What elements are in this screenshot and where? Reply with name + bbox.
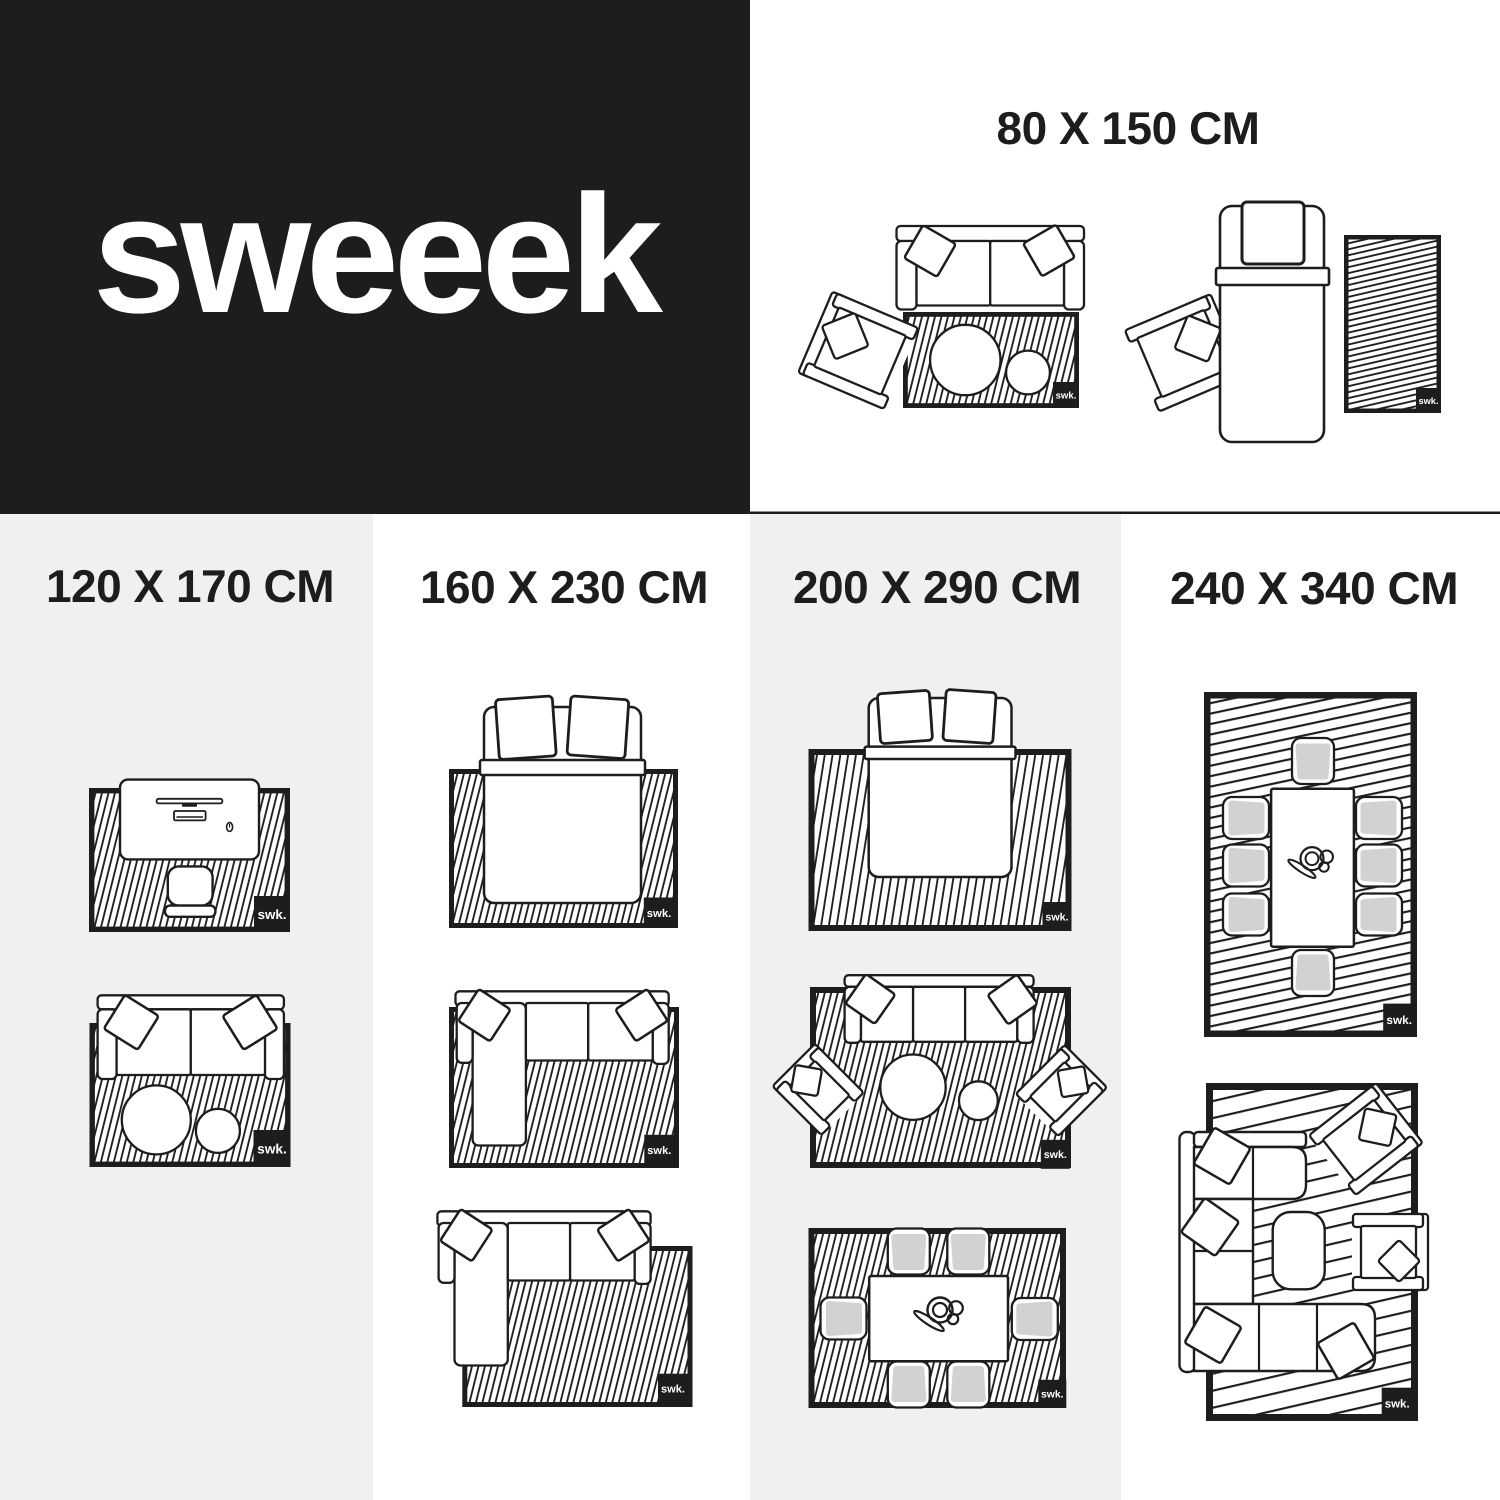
svg-text:swk.: swk. [1044, 1149, 1067, 1161]
svg-text:120 X 170 CM: 120 X 170 CM [46, 560, 334, 612]
svg-text:sweeek: sweeek [93, 160, 664, 348]
svg-text:swk.: swk. [1385, 1398, 1410, 1410]
svg-text:swk.: swk. [258, 907, 287, 922]
svg-text:240 X 340 CM: 240 X 340 CM [1170, 562, 1458, 614]
svg-text:swk.: swk. [1419, 396, 1439, 406]
svg-text:swk.: swk. [1045, 911, 1068, 923]
svg-text:80 X 150 CM: 80 X 150 CM [997, 102, 1260, 154]
svg-text:swk.: swk. [1041, 1390, 1064, 1401]
svg-text:swk.: swk. [257, 1141, 287, 1156]
svg-text:swk.: swk. [1056, 391, 1077, 402]
svg-text:200 X 290 CM: 200 X 290 CM [793, 561, 1081, 613]
svg-text:160 X 230 CM: 160 X 230 CM [420, 561, 708, 613]
svg-text:swk.: swk. [661, 1384, 685, 1396]
svg-text:swk.: swk. [1386, 1013, 1412, 1027]
svg-text:swk.: swk. [647, 908, 672, 920]
svg-text:swk.: swk. [647, 1145, 671, 1157]
